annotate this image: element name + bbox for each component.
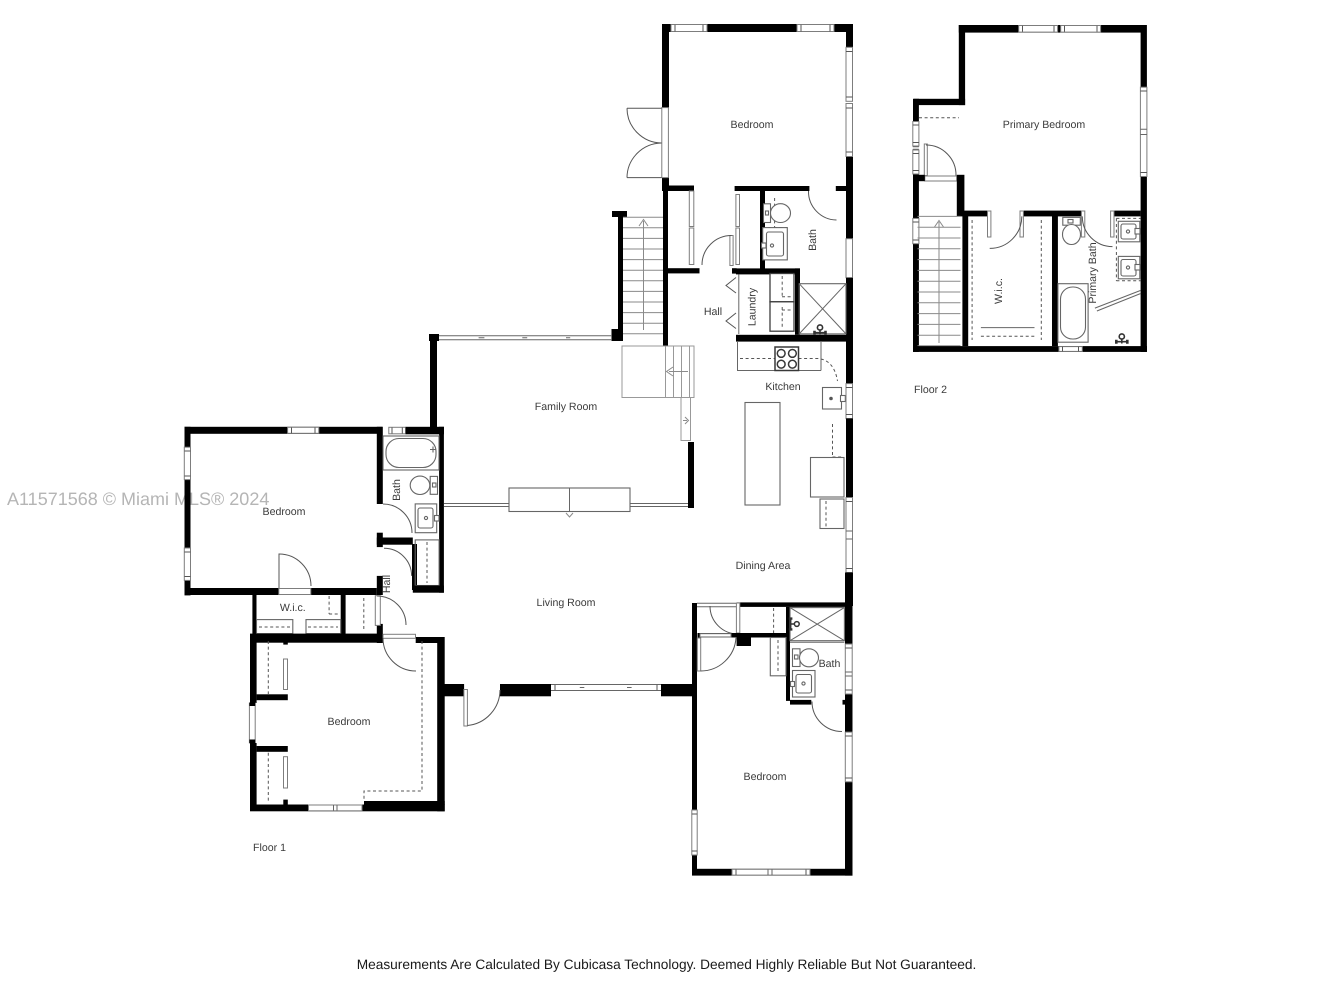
svg-text:W.i.c.: W.i.c. [280, 602, 306, 614]
svg-text:Primary Bath: Primary Bath [1087, 242, 1099, 303]
svg-text:Bath: Bath [807, 229, 819, 251]
svg-text:Bedroom: Bedroom [731, 119, 774, 131]
svg-text:Floor 2: Floor 2 [914, 384, 947, 396]
svg-text:Bedroom: Bedroom [328, 716, 371, 728]
svg-text:Bedroom: Bedroom [744, 771, 787, 783]
svg-text:Bedroom: Bedroom [263, 506, 306, 518]
svg-text:Floor 1: Floor 1 [253, 842, 286, 854]
svg-text:Hall: Hall [704, 306, 722, 318]
svg-text:A11571568 © Miami MLS® 2024: A11571568 © Miami MLS® 2024 [7, 489, 269, 509]
svg-text:Hall: Hall [381, 575, 393, 593]
svg-text:Family Room: Family Room [535, 401, 598, 413]
svg-text:Dining Area: Dining Area [736, 560, 791, 572]
svg-text:Primary Bedroom: Primary Bedroom [1003, 119, 1086, 131]
svg-text:Living Room: Living Room [537, 597, 596, 609]
svg-text:Bath: Bath [391, 479, 403, 501]
svg-text:Laundry: Laundry [747, 287, 759, 326]
svg-text:Measurements Are Calculated By: Measurements Are Calculated By Cubicasa … [357, 957, 977, 972]
svg-text:Kitchen: Kitchen [765, 381, 800, 393]
svg-text:W.i.c.: W.i.c. [993, 278, 1005, 304]
svg-text:Bath: Bath [819, 658, 841, 670]
